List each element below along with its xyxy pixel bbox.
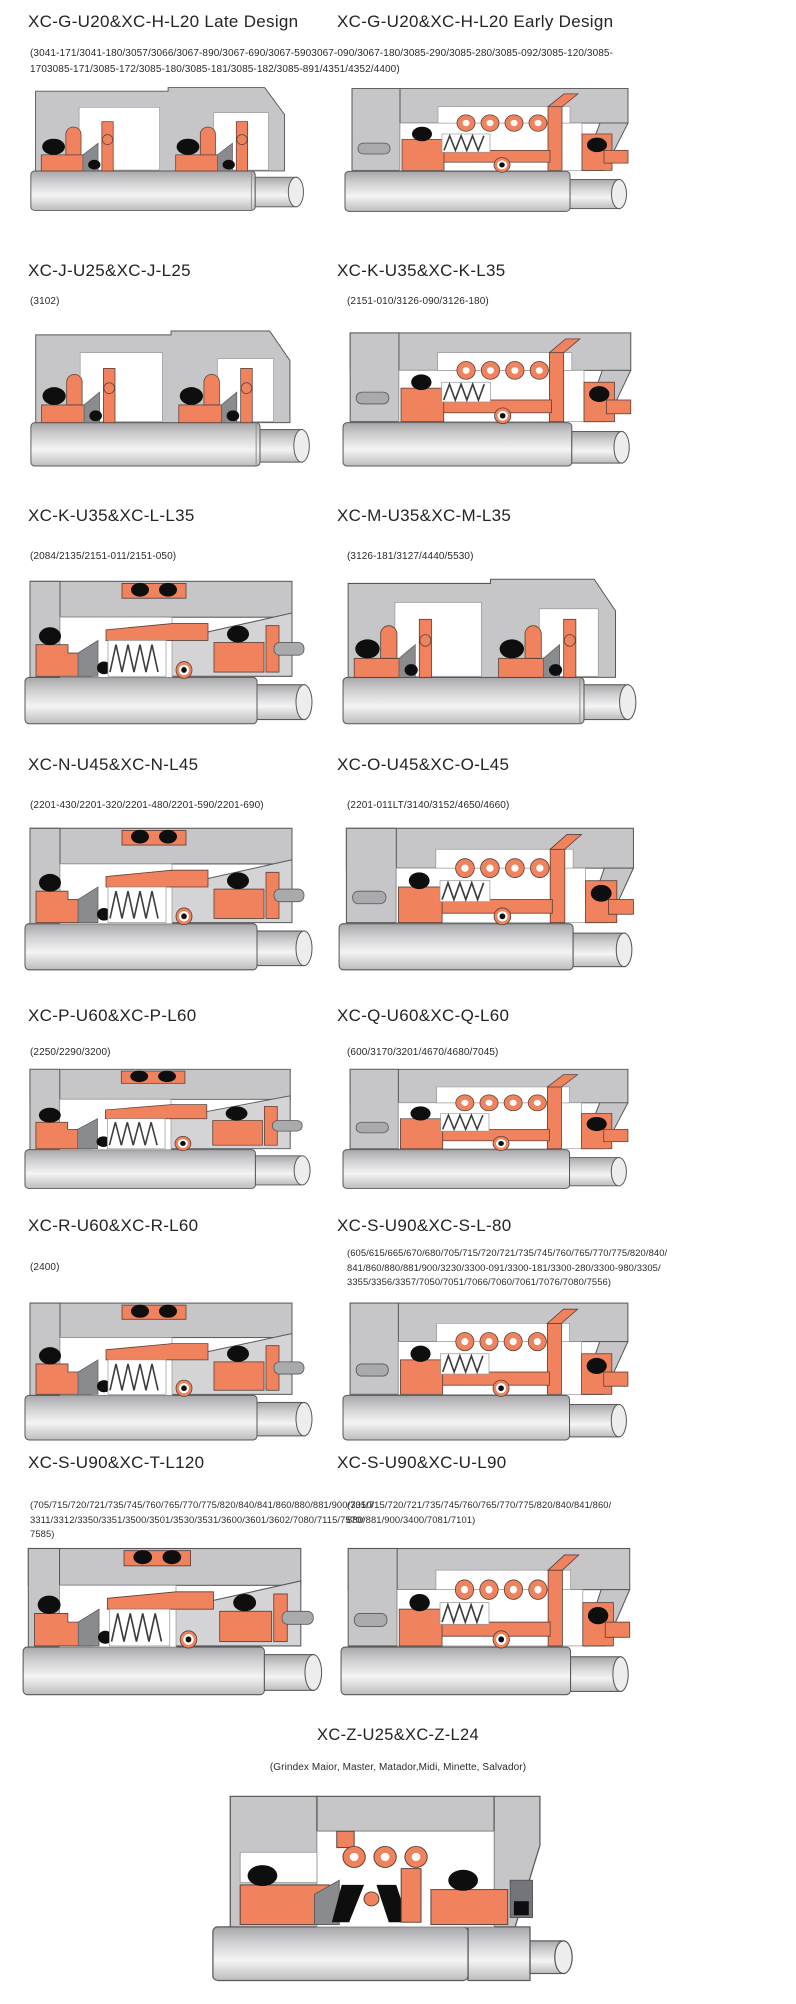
seal-cross-section-xc-j	[28, 327, 318, 470]
parts-list-xc-k: (2151-010/​3126-090/​3126-180)	[347, 294, 637, 310]
section-title-xc-k: XC-K-U35&XC-K-L35	[337, 261, 506, 281]
parts-list-xc-p: (2250/​2290/​3200)	[30, 1045, 310, 1061]
seal-cross-section-xc-t	[20, 1542, 332, 1699]
parts-list-xc-m: (3126-181/​3127/​4440/​5530)	[347, 549, 637, 565]
section-title-xc-p: XC-P-U60&XC-P-L60	[28, 1006, 197, 1026]
section-title-xc-r: XC-R-U60&XC-R-L60	[28, 1216, 198, 1236]
section-title-xc-s-l: XC-S-U90&XC-S-L-80	[337, 1216, 512, 1236]
parts-list-xc-u: (705/​715/​720/​721/​735/​745/​760/​765/…	[347, 1498, 615, 1527]
seal-cross-section-xc-s-l	[340, 1297, 642, 1444]
section-title-xc-q: XC-Q-U60&XC-Q-L60	[337, 1006, 509, 1026]
section-title-xc-o: XC-O-U45&XC-O-L45	[337, 755, 509, 775]
seal-cross-section-xc-u	[338, 1542, 644, 1699]
parts-list-row1: (3041-171/​3041-180/​3057/​3066/​3067-89…	[30, 46, 616, 78]
seal-cross-section-xc-m	[340, 575, 645, 728]
parts-list-xc-j: (3102)	[30, 294, 310, 310]
seal-cross-section-xc-g-early	[342, 83, 642, 215]
seal-cross-section-xc-k-l	[22, 575, 322, 728]
parts-list-xc-k-l: (2084/​2135/​2151-011/​2151-050)	[30, 549, 320, 565]
seal-cross-section-xc-r	[22, 1297, 322, 1444]
seal-cross-section-xc-z	[203, 1787, 587, 1991]
parts-list-xc-s-l: (605/​615/​665/​670/​680/​705/​715/​720/…	[347, 1246, 677, 1290]
parts-list-xc-r: (2400)	[30, 1260, 230, 1276]
section-title-xc-m: XC-M-U35&XC-M-L35	[337, 506, 511, 526]
section-title-xc-n: XC-N-U45&XC-N-L45	[28, 755, 198, 775]
seal-cross-section-xc-g-late	[28, 84, 312, 214]
seal-cross-section-xc-k	[340, 327, 645, 470]
seal-cross-section-xc-o	[336, 822, 648, 974]
parts-list-xc-n: (2201-430/​2201-320/​2201-480/​2201-590/…	[30, 798, 340, 814]
section-title-xc-g-early: XC-G-U20&XC-H-L20 Early Design	[337, 12, 613, 32]
section-title-xc-t: XC-S-U90&XC-T-L120	[28, 1453, 204, 1473]
parts-list-xc-q: (600/​3170/​3201/​4670/​4680/​7045)	[347, 1045, 637, 1061]
section-title-xc-j: XC-J-U25&XC-J-L25	[28, 261, 191, 281]
section-title-xc-u: XC-S-U90&XC-U-L90	[337, 1453, 506, 1473]
section-title-xc-z: XC-Z-U25&XC-Z-L24	[0, 1726, 796, 1745]
parts-list-xc-z: (Grindex Maior, Master, Matador,Midi, Mi…	[0, 1760, 796, 1776]
section-title-xc-g-late: XC-G-U20&XC-H-L20 Late Design	[28, 12, 298, 32]
seal-cross-section-xc-p	[22, 1064, 320, 1192]
seal-cross-section-xc-n	[22, 822, 322, 974]
seal-cross-section-xc-q	[340, 1064, 642, 1192]
section-title-xc-k-l: XC-K-U35&XC-L-L35	[28, 506, 195, 526]
parts-list-xc-o: (2201-011LT/​3140/​3152/​4650/​4660)	[347, 798, 647, 814]
parts-list-xc-t: (705/​715/​720/​721/​735/​745/​760/​765/…	[30, 1498, 378, 1542]
